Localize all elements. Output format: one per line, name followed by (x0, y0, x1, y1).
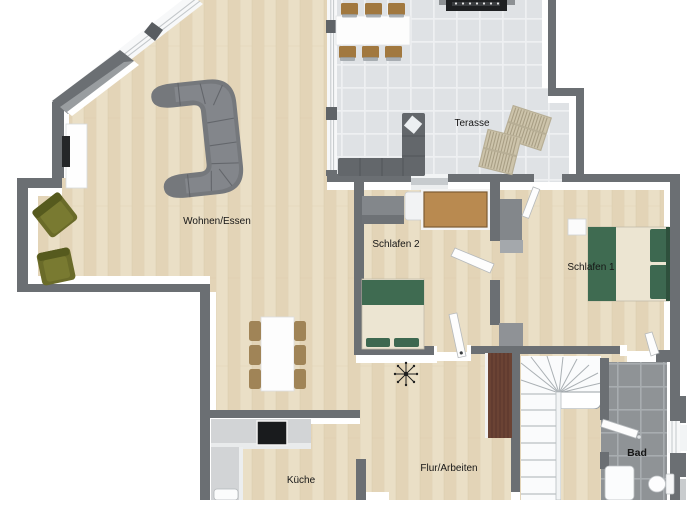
svg-text:Küche: Küche (287, 475, 316, 486)
svg-text:Flur/Arbeiten: Flur/Arbeiten (420, 463, 477, 474)
svg-text:Terasse: Terasse (454, 118, 489, 129)
svg-text:Bad: Bad (627, 447, 647, 459)
svg-text:Wohnen/Essen: Wohnen/Essen (183, 216, 251, 227)
svg-text:Schlafen 1: Schlafen 1 (567, 262, 615, 273)
svg-text:Schlafen 2: Schlafen 2 (372, 239, 420, 250)
